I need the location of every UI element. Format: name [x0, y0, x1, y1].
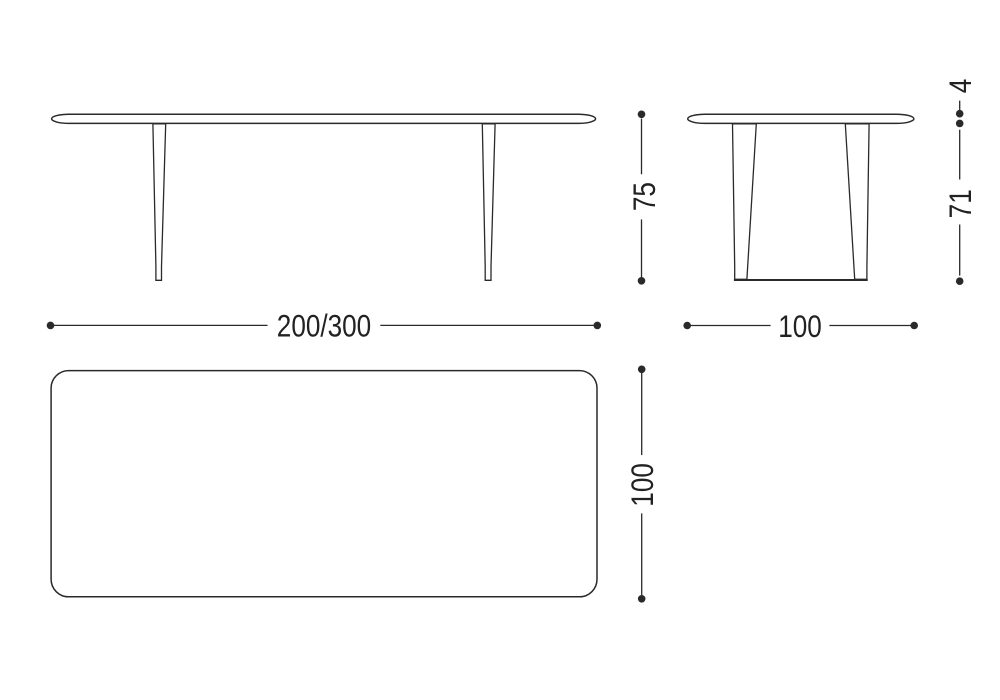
svg-text:75: 75 [626, 182, 662, 211]
svg-text:100: 100 [624, 463, 660, 507]
svg-text:71: 71 [942, 189, 978, 218]
svg-text:4: 4 [942, 79, 978, 94]
svg-text:200/300: 200/300 [277, 308, 371, 344]
svg-text:100: 100 [778, 308, 822, 344]
